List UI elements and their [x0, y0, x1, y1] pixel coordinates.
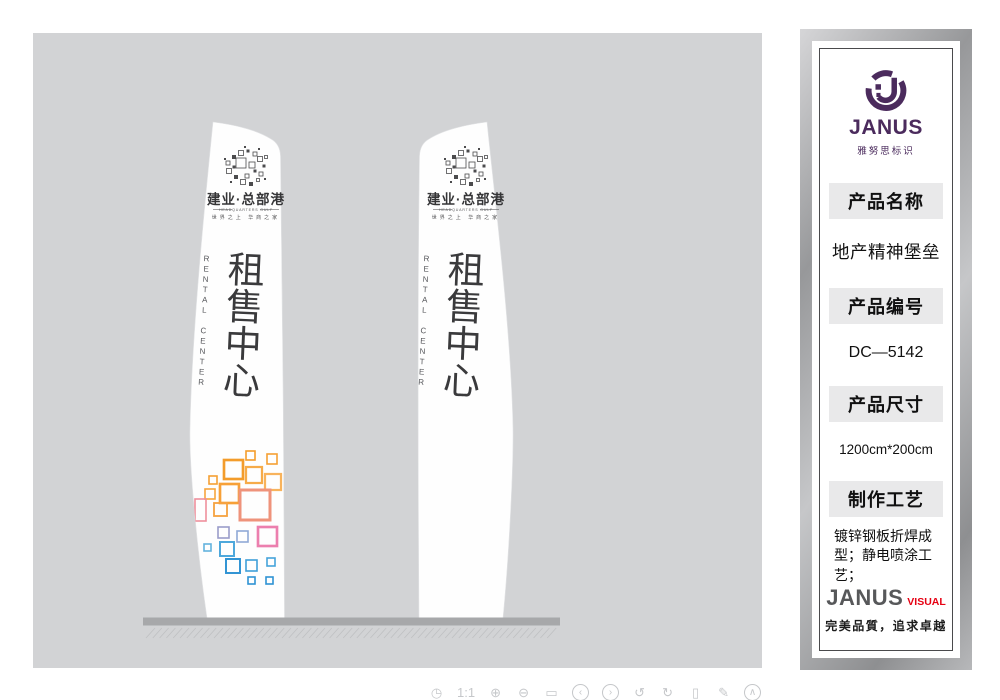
product-code-header: 产品编号 [829, 288, 943, 324]
product-size-value: 1200cm*200cm [839, 442, 933, 457]
panel-footer: JANUS VISUAL 完美品質，追求卓越 [828, 585, 944, 638]
svg-text:T: T [199, 357, 205, 366]
svg-text:E: E [203, 264, 209, 273]
viewer-toolbar: ◷1:1⊕⊖▭‹›↺↻▯✎∧ [429, 684, 761, 700]
svg-text:T: T [203, 285, 209, 294]
zoom-out-icon[interactable]: ⊖ [516, 685, 531, 700]
delete-icon[interactable]: ▯ [688, 685, 703, 700]
pylon-brand-name: 建业·总部港 [206, 191, 285, 207]
process-value: 镀锌钢板折焊成型；静电喷涂工艺； [834, 527, 938, 585]
footer-visual-wordmark: VISUAL [907, 596, 946, 608]
svg-text:中: 中 [224, 324, 263, 367]
svg-text:N: N [199, 347, 206, 356]
svg-text:N: N [203, 275, 210, 284]
footer-janus-wordmark: JANUS [826, 585, 903, 611]
svg-text:租: 租 [227, 250, 266, 293]
spec-panel: JANUS 雅努思标识 产品名称 地产精神堡垒 产品编号 DC—5142 产品尺… [812, 41, 960, 658]
next-icon[interactable]: › [602, 684, 619, 700]
preview-icon[interactable]: ▭ [544, 685, 559, 700]
svg-text:A: A [202, 295, 208, 304]
janus-wordmark: JANUS [849, 116, 923, 140]
rental-title-vertical-text: 租售中心 [222, 250, 266, 403]
svg-text:R: R [203, 254, 210, 263]
svg-text:C: C [200, 326, 207, 335]
process-header: 制作工艺 [829, 481, 943, 517]
collapse-icon[interactable]: ∧ [744, 684, 761, 700]
svg-text:售: 售 [225, 286, 264, 330]
svg-text:R: R [198, 378, 205, 387]
svg-text:L: L [202, 306, 207, 315]
spec-panel-inner: JANUS 雅努思标识 产品名称 地产精神堡垒 产品编号 DC—5142 产品尺… [819, 48, 953, 651]
prev-icon[interactable]: ‹ [572, 684, 589, 700]
pylon-brand-slogan: 世界之上 华商之家 [212, 214, 280, 221]
zoom-in-icon[interactable]: ⊕ [488, 685, 503, 700]
product-size-header: 产品尺寸 [829, 386, 943, 422]
edit-icon[interactable]: ✎ [716, 685, 731, 700]
product-name-value: 地产精神堡垒 [832, 239, 940, 264]
undo-icon[interactable]: ↺ [632, 685, 647, 700]
svg-text:E: E [200, 336, 206, 345]
svg-text:心: 心 [222, 361, 261, 404]
spec-panel-frame: JANUS 雅努思标识 产品名称 地产精神堡垒 产品编号 DC—5142 产品尺… [800, 29, 972, 670]
ground-bar [143, 618, 560, 626]
redo-icon[interactable]: ↻ [660, 685, 675, 700]
svg-text:E: E [199, 367, 205, 376]
actual-size-icon[interactable]: 1:1 [457, 685, 475, 700]
janus-chinese-name: 雅努思标识 [857, 143, 915, 157]
ground-hatching [146, 628, 556, 638]
design-canvas: 建业·总部港 HEADQUARTERS GULF 世界之上 华商之家 RENTA… [33, 33, 762, 668]
product-code-value: DC—5142 [849, 344, 924, 362]
pylon-brand-en: HEADQUARTERS GULF [219, 208, 273, 212]
history-icon[interactable]: ◷ [429, 685, 444, 700]
janus-logo-icon [854, 65, 918, 118]
footer-slogan: 完美品質，追求卓越 [825, 617, 947, 634]
product-name-header: 产品名称 [829, 183, 943, 219]
